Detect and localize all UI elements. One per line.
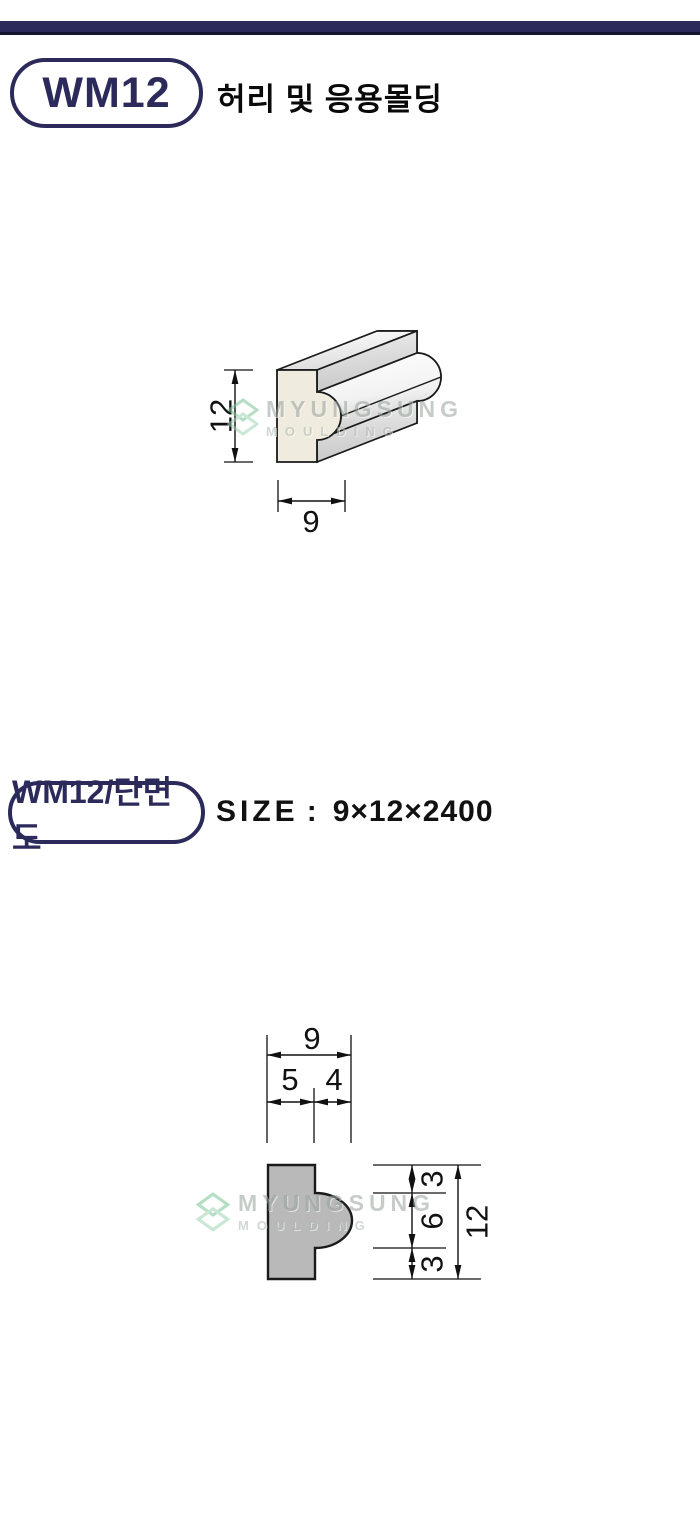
product-code-label: WM12 [42,69,170,118]
catalog-page: WM12 허리 및 응용몰딩 [0,0,700,1540]
sect-left-width-dim-label: 5 [281,1062,298,1097]
section-profile-shape [268,1165,352,1279]
cross-section-drawing: 9 5 4 3 6 3 12 [190,1015,500,1300]
size-spec-label: SIZE [216,795,299,829]
sect-top-dim-label: 3 [415,1170,450,1187]
size-spec-value: 9×12×2400 [333,795,494,829]
size-spec: SIZE : 9×12×2400 [216,795,494,829]
size-spec-colon: : [307,795,317,829]
iso-height-dim-label: 12 [204,399,239,433]
top-divider-bar [0,21,700,35]
sect-bottom-dim-label: 3 [415,1255,450,1272]
iso-width-dim-label: 9 [302,504,319,539]
product-category-title: 허리 및 응용몰딩 [217,74,443,119]
sect-height-dim-label: 12 [460,1205,495,1239]
section-code-badge: WM12/단면도 [8,781,205,844]
sect-middle-dim-label: 6 [415,1212,450,1229]
isometric-drawing: 12 9 [180,300,500,545]
sect-bump-depth-dim-label: 4 [325,1062,342,1097]
product-code-badge: WM12 [10,58,203,128]
section-code-label: WM12/단면도 [12,767,201,859]
sect-width-dim-label: 9 [303,1021,320,1056]
